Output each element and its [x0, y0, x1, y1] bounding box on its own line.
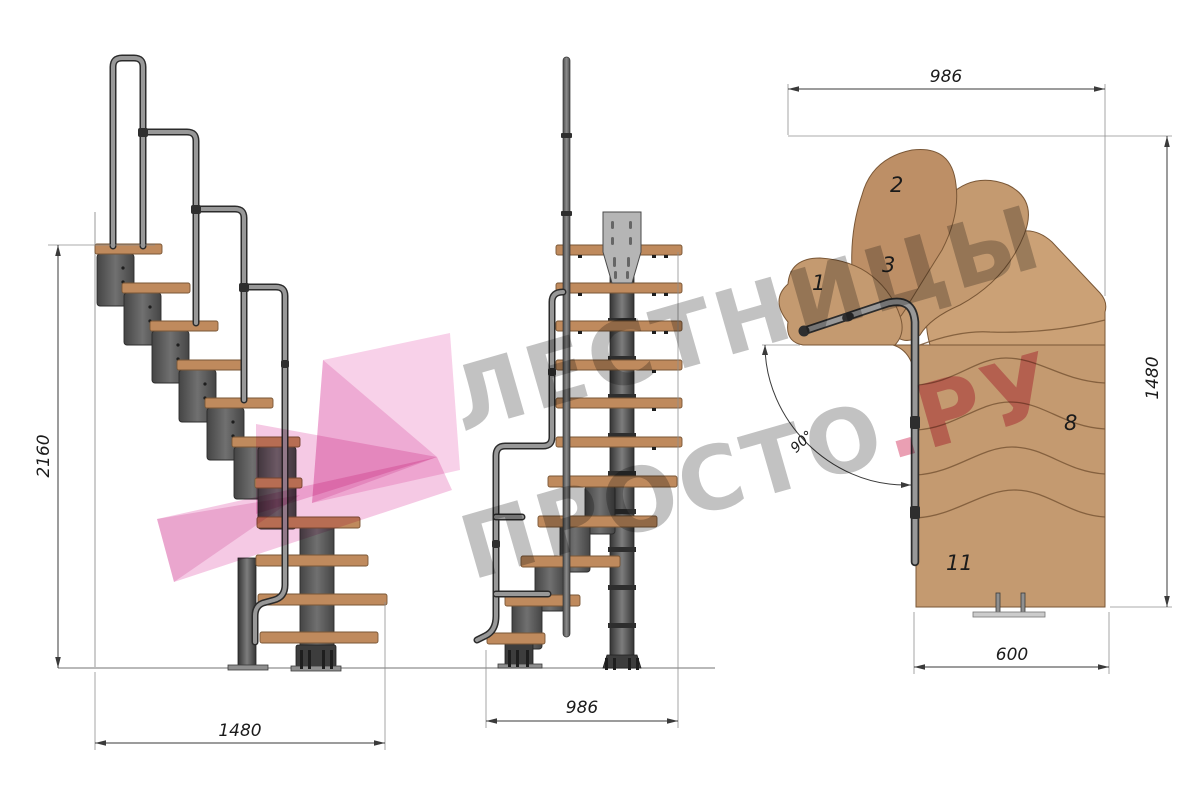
plan-step-label-2: 2: [890, 173, 903, 197]
staircase-drawing: 2160 1480: [0, 0, 1200, 790]
plan-bottom-dimension: 600: [914, 612, 1109, 674]
rail-clamp: [239, 283, 249, 292]
plan-width-label: 986: [930, 67, 963, 87]
front-column-foot: [603, 655, 641, 668]
plan-step-label-11: 11: [946, 551, 973, 575]
rail-clamp: [138, 128, 148, 137]
rail-clamp: [191, 205, 201, 214]
technical-drawing-page: 2160 1480: [0, 0, 1200, 790]
side-height-label: 2160: [34, 434, 54, 477]
plan-bottom-label: 600: [996, 645, 1028, 665]
rail-clamp: [281, 360, 289, 368]
plan-length-label: 1480: [1143, 356, 1163, 399]
side-width-label: 1480: [218, 721, 261, 741]
front-depth-label: 986: [566, 698, 599, 718]
front-mounting-plate: [603, 212, 641, 283]
